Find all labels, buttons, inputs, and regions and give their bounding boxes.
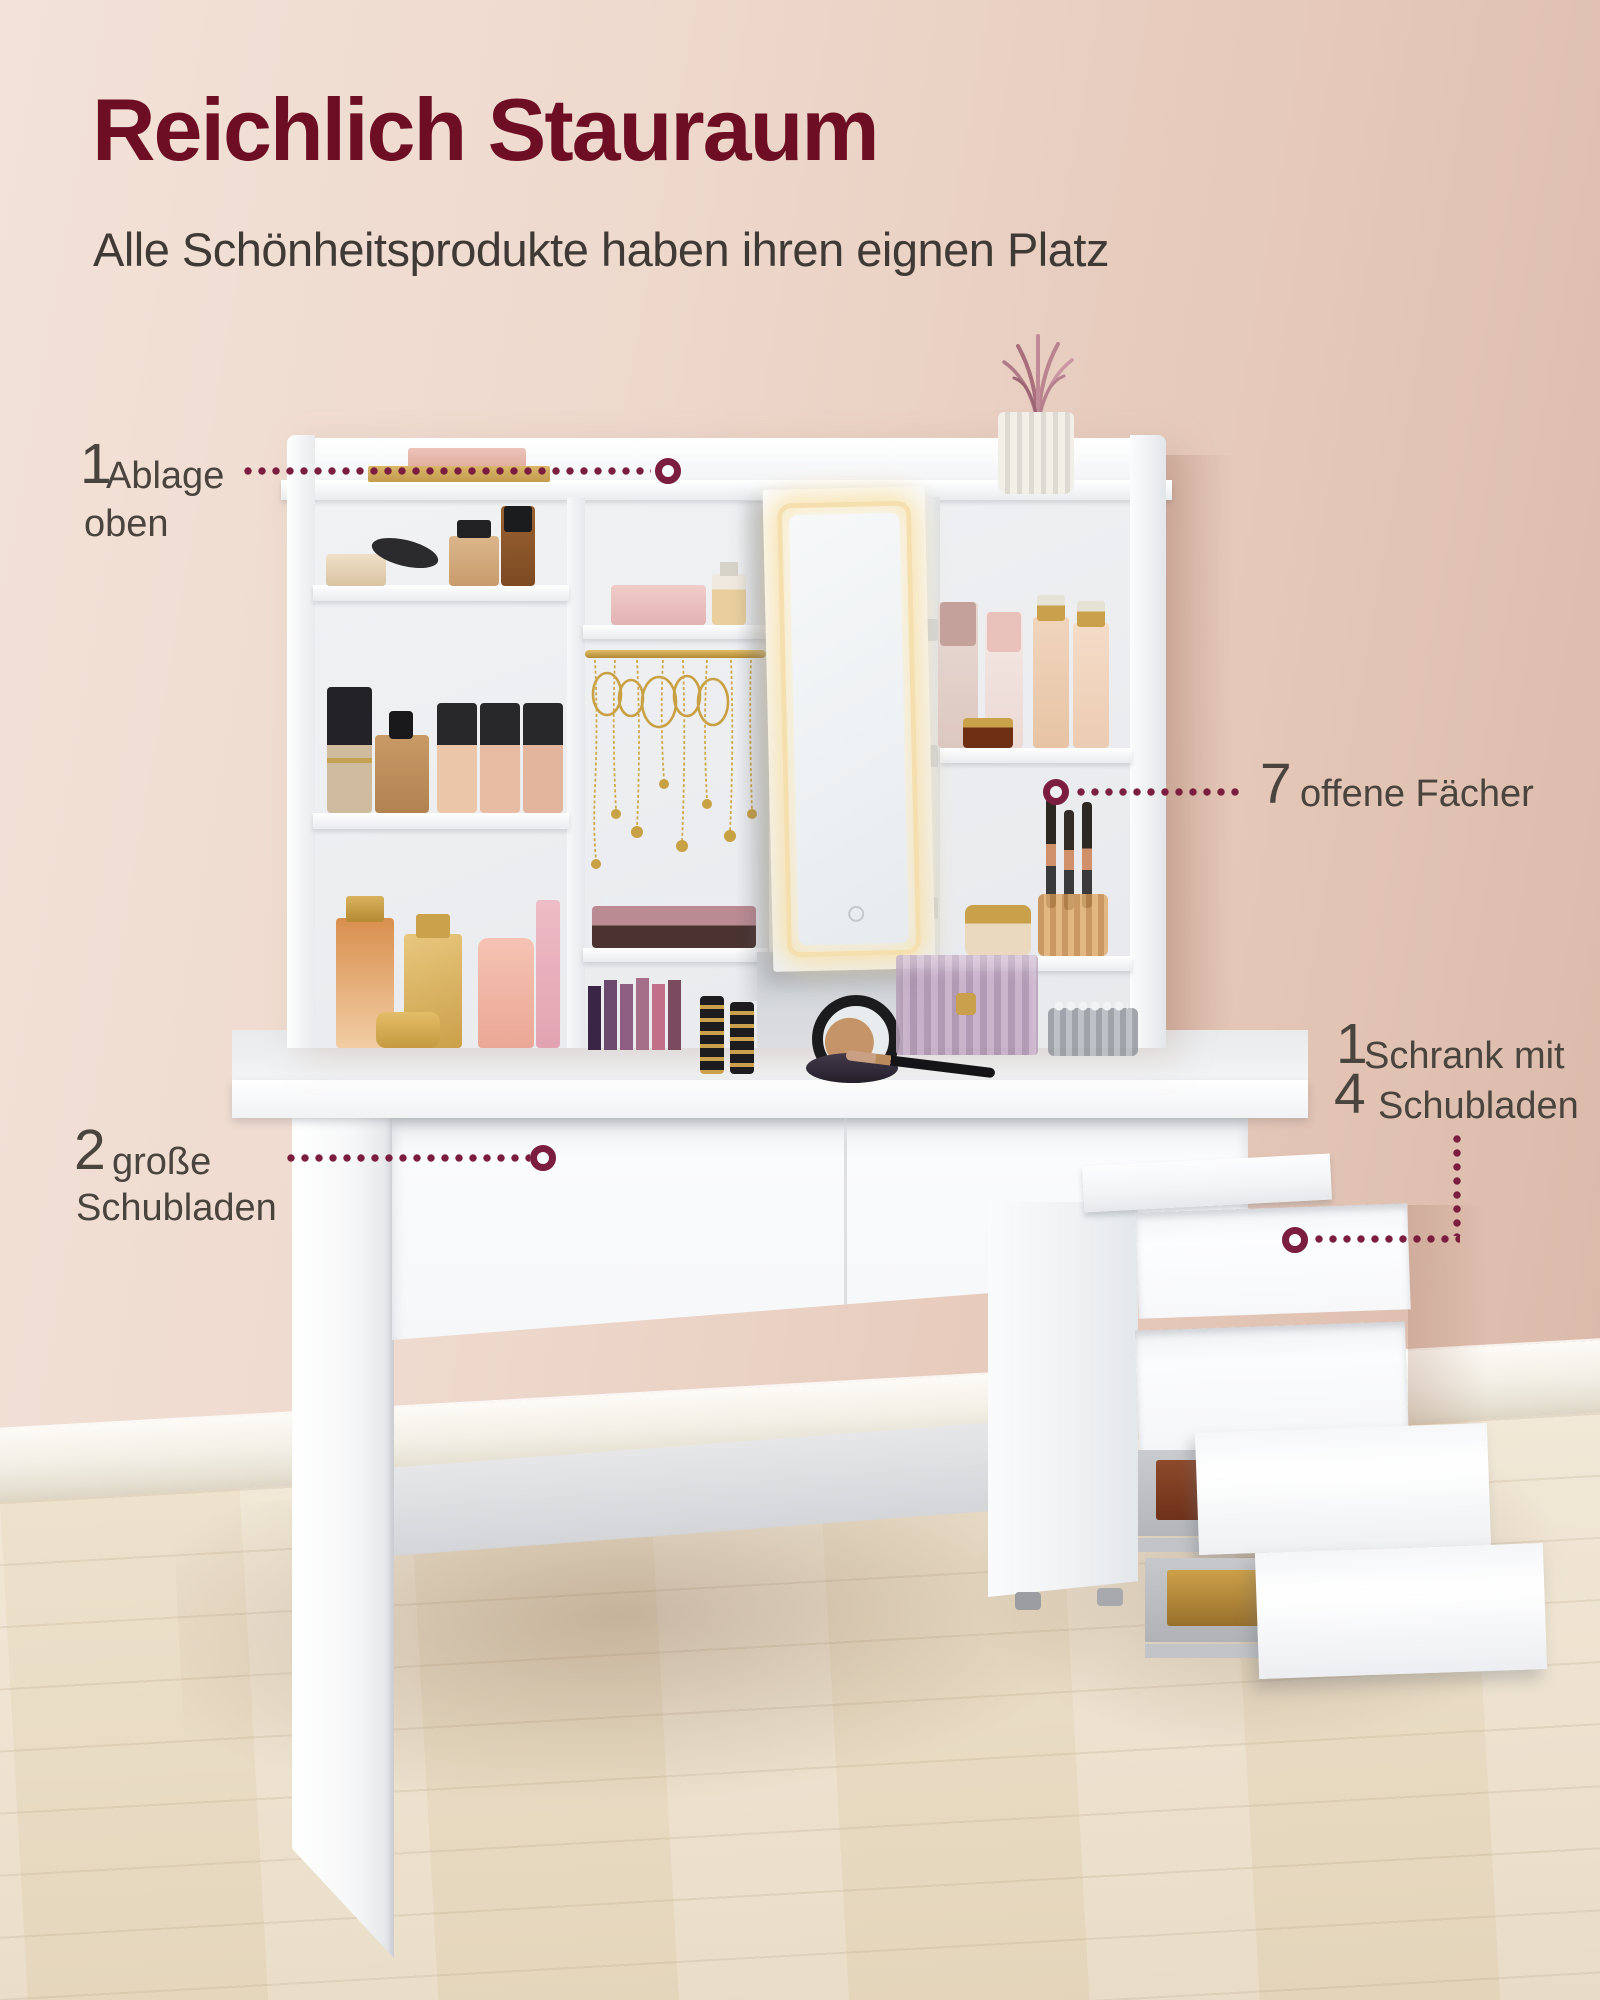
pink-gift-box [611, 585, 706, 625]
lipstick [652, 984, 665, 1050]
lipstick [620, 984, 633, 1050]
cabinet-caster [1097, 1588, 1123, 1606]
brush-cup [1038, 894, 1108, 956]
callout-drawers-ring-icon [530, 1145, 556, 1171]
callout-schrank-leader-line-vertical [1452, 1134, 1462, 1236]
brush-holder [1038, 798, 1112, 956]
lipstick [604, 980, 617, 1050]
drawer-divider [844, 1116, 847, 1340]
callout-ablage-label-2: oben [84, 502, 169, 547]
right-shelf-upper [940, 748, 1132, 763]
gold-pump-bottle [1033, 617, 1069, 748]
pearl-jar [1048, 1008, 1138, 1056]
pearl-strand-icon [1054, 998, 1128, 1014]
page-title: Reichlich Stauraum [92, 86, 878, 174]
desk-leg [292, 1116, 394, 1958]
gold-striped-lipstick [730, 1002, 754, 1074]
makeup-brush [1046, 798, 1056, 908]
callout-schrank-leader-line-horizontal [1314, 1234, 1460, 1244]
cabinet-side-panel [988, 1202, 1138, 1597]
callout-drawers-label-2: Schubladen [76, 1186, 277, 1231]
makeup-brush [1082, 802, 1092, 908]
gold-perfume-round [376, 1012, 440, 1048]
callout-faecher-label: offene Fächer [1300, 772, 1534, 817]
foundation-bottle [523, 703, 563, 813]
callout-drawers-label-1: große [112, 1140, 211, 1185]
callout-drawers-number: 2 [74, 1122, 106, 1179]
callout-faecher-ring-icon [1043, 779, 1069, 805]
callout-schrank-number-2: 4 [1334, 1066, 1366, 1123]
palette-stack [592, 906, 756, 948]
lipstick [588, 986, 601, 1050]
pink-slim-bottle [536, 900, 560, 1048]
purple-glass-box [896, 955, 1038, 1055]
mirror-door [763, 486, 936, 972]
gold-cream-jar [965, 905, 1031, 956]
foundation-bottle [480, 703, 520, 813]
product-infographic: 1 Ablage oben 7 offene Fächer 2 große Sc… [0, 0, 1600, 2000]
pink-tube [478, 938, 534, 1048]
compact-mirror [806, 995, 906, 1085]
lipstick-row [588, 976, 684, 1050]
cream-powder-jar [326, 554, 386, 586]
callout-faecher-leader-line [1076, 787, 1242, 797]
tray-cloth [408, 448, 526, 468]
amber-bottle [501, 506, 535, 586]
gold-striped-lipstick [700, 996, 724, 1074]
callout-drawers-leader-line [286, 1153, 530, 1163]
wall-shadow-hutch [1164, 455, 1234, 1055]
callout-ablage-ring-icon [655, 458, 681, 484]
left-shelf-lower [313, 813, 569, 829]
cabinet-caster [1015, 1592, 1041, 1610]
foundation-stick [327, 687, 372, 813]
callout-ablage-label-1: Ablage [106, 454, 224, 499]
dropper-bottle [375, 735, 429, 813]
tan-pump-bottle [449, 536, 499, 586]
left-shelf-upper [313, 585, 569, 601]
mirror-glass [789, 513, 909, 945]
callout-schrank-label-1: Schrank mit [1364, 1034, 1565, 1079]
cabinet [985, 1150, 1555, 1680]
hutch-left-post [287, 435, 315, 1048]
page-subtitle: Alle Schönheitsprodukte haben ihren eign… [93, 226, 1109, 273]
hutch-right-post [1130, 435, 1166, 1048]
lipstick [636, 978, 649, 1050]
callout-ablage-leader-line [243, 466, 651, 476]
gold-pump-bottle [1073, 623, 1109, 748]
callout-schrank-label-2: Schubladen [1378, 1084, 1579, 1129]
hutch-divider-left [567, 497, 585, 1048]
gold-lipstick-pair [700, 994, 758, 1074]
desktop-front-edge [232, 1080, 1308, 1118]
callout-schrank-ring-icon [1282, 1227, 1308, 1253]
cabinet-drawer-1 [1135, 1203, 1411, 1318]
cabinet-drawer-4-front [1255, 1543, 1547, 1679]
cabinet-drawer-3-front [1195, 1423, 1491, 1555]
plant-pot [998, 412, 1074, 494]
amber-gold-jar [963, 718, 1013, 748]
gold-clasp-icon [956, 993, 976, 1015]
foundation-bottle [437, 703, 477, 813]
lipstick [668, 980, 681, 1050]
callout-faecher-number: 7 [1260, 756, 1292, 813]
cabinet-top [1082, 1154, 1332, 1213]
